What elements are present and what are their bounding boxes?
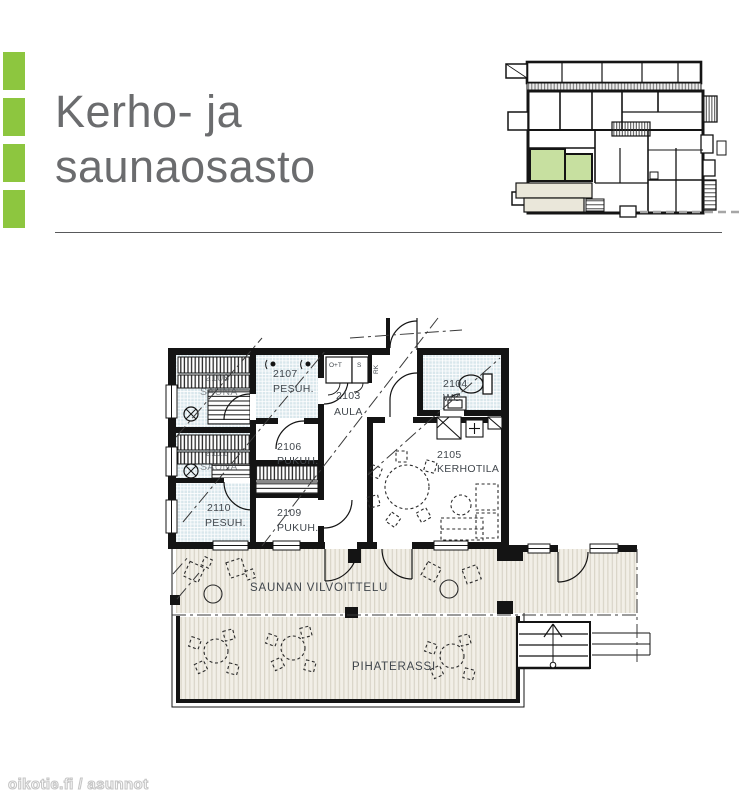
page-title: Kerho- ja saunaosasto (55, 84, 316, 194)
closet-label-ot: O+T (329, 362, 342, 369)
accent-square (3, 98, 25, 136)
outdoor-stairs (517, 622, 650, 668)
area-label-vilvoittelu: SAUNAN VILVOITTELU (250, 582, 388, 594)
riser-label-rk: RK (373, 364, 380, 374)
closets (326, 357, 368, 383)
room-label-2103: 2103 (336, 390, 361, 402)
svg-text:SAUNA: SAUNA (200, 461, 238, 473)
svg-text:2111: 2111 (205, 447, 228, 459)
room-label-2105-name: KERHOTILA (437, 463, 499, 475)
title-divider (55, 232, 722, 233)
main-floorplan: 2108 SAUNA 2107 PESUH. 2103 AULA 2104 WC… (160, 293, 652, 717)
page-title-line1: Kerho- ja (55, 84, 316, 139)
closet-label-s: S (357, 362, 362, 369)
minimap-terrace-rooms (516, 183, 604, 212)
accent-squares (3, 52, 25, 236)
page-title-line2: saunaosasto (55, 139, 316, 194)
floorplan-page: Kerho- ja saunaosasto (0, 0, 743, 808)
area-label-pihaterassi: PIHATERASSI (352, 661, 436, 673)
room-label-2109-name: PUKUH. (277, 522, 318, 534)
room-label-2104: 2104 (443, 378, 468, 390)
room-label-2104-name: WC (443, 392, 461, 404)
room-label-2106-name: PUKUH. (277, 455, 318, 467)
oikotie-watermark: oikotie.fi / asunnot (8, 776, 149, 793)
room-label-2105: 2105 (437, 449, 462, 461)
accent-square (3, 144, 25, 182)
accent-square (3, 190, 25, 228)
room-label-2103-name: AULA (334, 406, 363, 418)
minimap-highlighted-rooms (530, 149, 592, 181)
svg-text:SAUNA: SAUNA (200, 386, 238, 398)
room-label-2106: 2106 (277, 441, 302, 453)
room-label-2109: 2109 (277, 507, 302, 519)
accent-square (3, 52, 25, 90)
room-label-2107-name: PESUH. (273, 383, 314, 395)
building-overview-minimap (500, 50, 743, 222)
svg-text:2108: 2108 (205, 372, 230, 384)
room-label-2110-name: PESUH. (205, 517, 246, 529)
room-label-2110: 2110 (207, 502, 231, 514)
kitchenette (437, 417, 502, 439)
room-label-2107: 2107 (273, 368, 298, 380)
